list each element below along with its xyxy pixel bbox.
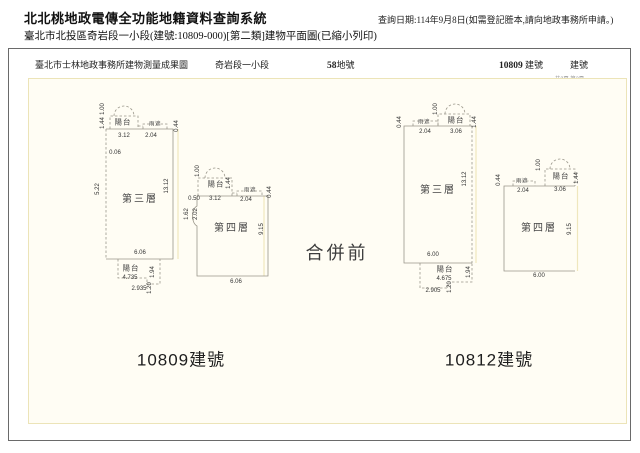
office-title: 臺北市士林地政事務所建物測量成果圖 <box>35 58 188 71</box>
dim-label: 1.20 <box>447 281 453 293</box>
dim-label: 4.735 <box>122 275 137 281</box>
dim-label: 2.04 <box>419 129 431 135</box>
dim-label: 1.44 <box>226 177 232 189</box>
dim-label: 2.04 <box>517 188 529 194</box>
dim-label: 0.44 <box>496 174 502 186</box>
building-number-column-label: 建號 <box>570 58 588 71</box>
right-building-number-label: 10812建號 <box>445 346 533 371</box>
dim-label: 0.44 <box>267 186 273 198</box>
dim-label: 雨遮 <box>516 179 528 185</box>
dim-label: 3.06 <box>450 129 462 135</box>
dim-label: 0.06 <box>109 150 121 156</box>
land-number-value: 58 <box>327 61 337 71</box>
document-subtitle: 臺北市北投區奇岩段一小段(建號:10809-000)[第二類]建物平面圖(已縮小… <box>24 28 377 43</box>
dim-label: 2.905 <box>425 288 440 294</box>
land-number: 58地號 <box>327 58 355 71</box>
dim-label: 雨遮 <box>244 188 256 194</box>
dim-label: 0.44 <box>397 116 403 128</box>
dim-label: 2.935 <box>131 286 146 292</box>
dim-label: 1.44 <box>100 117 106 129</box>
dim-label: 陽台 <box>208 180 225 188</box>
dim-label: 2.04 <box>240 197 252 203</box>
dim-label: 6.00 <box>533 273 545 279</box>
dim-label: 1.94 <box>150 266 156 278</box>
dim-label: 3.12 <box>118 133 130 139</box>
dim-label: 6.00 <box>427 252 439 258</box>
dim-label: 0.44 <box>174 120 180 132</box>
dim-label: 6.06 <box>134 250 146 256</box>
dim-label: 3.06 <box>554 187 566 193</box>
survey-document: 臺北市士林地政事務所建物測量成果圖 奇岩段一小段 58地號 10809 建號 建… <box>8 48 631 441</box>
section-name: 奇岩段一小段 <box>215 58 269 71</box>
dim-label: 1.00 <box>100 103 106 115</box>
dim-label: 9.15 <box>259 223 265 235</box>
dim-label: 3.12 <box>209 196 221 202</box>
dim-label: 1.44 <box>472 116 478 128</box>
dim-label: 5.22 <box>95 183 101 195</box>
dim-label: 陽台 <box>115 118 132 126</box>
dim-label: 1.00 <box>536 159 542 171</box>
dim-label: 1.20 <box>147 282 153 294</box>
building-number: 10809 建號 <box>499 58 543 71</box>
extension-lines <box>178 126 578 276</box>
land-number-suffix: 地號 <box>337 60 355 70</box>
dim-label: 陽台 <box>123 264 140 272</box>
merge-status-label: 合併前 <box>306 239 369 265</box>
system-title: 北北桃地政電傳全功能地籍資料查詢系統 <box>24 8 267 27</box>
dim-label: 9.15 <box>567 223 573 235</box>
dim-label: 陽台 <box>437 265 454 273</box>
dim-label: 1.44 <box>574 172 580 184</box>
building-number-value: 10809 <box>499 61 523 71</box>
dim-label: 1.62 <box>184 208 190 220</box>
dim-label: 第四層 <box>214 224 250 234</box>
dim-label: 陽台 <box>448 116 465 124</box>
dim-label: 13.12 <box>462 171 468 186</box>
dim-label: 雨遮 <box>149 122 161 128</box>
left-building-number-label: 10809建號 <box>137 346 225 371</box>
query-date: 查詢日期:114年9月8日(如需登記謄本,請向地政事務所申請。) <box>378 13 613 26</box>
dim-label: 第三層 <box>122 195 158 205</box>
dim-label: 2.04 <box>145 133 157 139</box>
dim-label: 0.50 <box>188 196 200 202</box>
dim-label: 1.00 <box>433 103 439 115</box>
dim-label: 雨遮 <box>418 120 430 126</box>
dim-label: 1.00 <box>195 165 201 177</box>
building-number-suffix: 建號 <box>525 60 543 70</box>
floor-plan-paper: 1.001.44陽台3.12雨遮2.040.440.065.2213.12第三層… <box>28 78 627 424</box>
dim-label: 1.94 <box>466 266 472 278</box>
dim-label: 2.02 <box>193 208 199 220</box>
dim-label: 第四層 <box>521 224 557 234</box>
dim-label: 第三層 <box>420 186 456 196</box>
dim-label: 13.12 <box>164 178 170 193</box>
dim-label: 陽台 <box>553 172 570 180</box>
dim-label: 6.06 <box>230 279 242 285</box>
